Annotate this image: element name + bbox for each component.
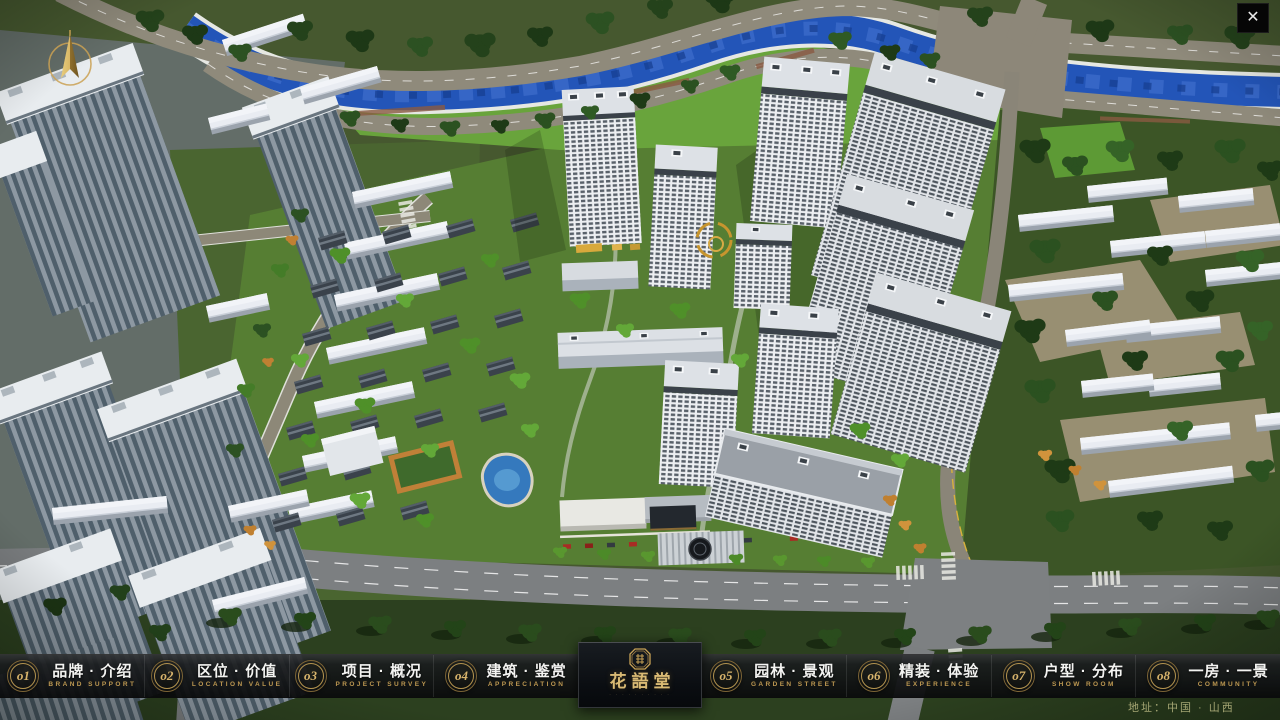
compass-icon: [44, 26, 96, 96]
brand-tagline: · · · · · · · · · ·: [609, 693, 670, 697]
menu-badge-icon: o3: [295, 660, 327, 692]
menu-group-left: o1 品牌 · 介绍BRAND SUPPORT o2 区位 · 价值LOCATI…: [0, 655, 578, 697]
menu-label-en: COMMUNITY: [1198, 682, 1260, 689]
menu-badge-icon: o2: [151, 660, 183, 692]
menu-label-zh: 建筑 · 鉴赏: [486, 664, 566, 679]
site-aerial-view: [0, 0, 1280, 720]
menu-badge-icon: o1: [7, 660, 39, 692]
close-button[interactable]: ✕: [1237, 3, 1269, 33]
menu-label-en: EXPERIENCE: [906, 682, 972, 689]
menu-badge-icon: o8: [1147, 660, 1179, 692]
menu-label-zh: 区位 · 价值: [197, 664, 277, 679]
menu-badge-icon: o6: [858, 660, 890, 692]
menu-label-zh: 项目 · 概况: [342, 664, 422, 679]
brand-seal-icon: [628, 647, 652, 671]
close-icon: ✕: [1246, 10, 1259, 26]
menu-label-en: GARDEN STREET: [751, 682, 838, 689]
menu-item-location-value[interactable]: o2 区位 · 价值LOCATION VALUE: [144, 655, 289, 697]
menu-item-architecture[interactable]: o4 建筑 · 鉴赏APPRECIATION: [433, 655, 578, 697]
menu-item-unit-distribution[interactable]: o7 户型 · 分布SHOW ROOM: [991, 655, 1136, 697]
menu-label-en: PROJECT SURVEY: [336, 682, 429, 689]
menu-item-garden-landscape[interactable]: o5 园林 · 景观GARDEN STREET: [702, 655, 846, 697]
menu-label-zh: 精装 · 体验: [899, 664, 979, 679]
menu-label-zh: 一房 · 一景: [1188, 664, 1268, 679]
menu-label-en: SHOW ROOM: [1052, 682, 1116, 689]
vignette-overlay: [0, 0, 1280, 720]
brand-title: 花語堂: [605, 673, 676, 690]
menu-label-zh: 户型 · 分布: [1044, 664, 1124, 679]
brand-logo-panel[interactable]: 花語堂 · · · · · · · · · ·: [578, 642, 702, 708]
menu-label-en: BRAND SUPPORT: [48, 682, 136, 689]
menu-badge-icon: o4: [445, 660, 477, 692]
menu-item-decor-experience[interactable]: o6 精装 · 体验EXPERIENCE: [846, 655, 991, 697]
menu-label-zh: 园林 · 景观: [754, 664, 834, 679]
menu-badge-icon: o5: [710, 660, 742, 692]
menu-label-en: APPRECIATION: [488, 682, 565, 689]
menu-label-en: LOCATION VALUE: [192, 682, 282, 689]
menu-item-brand-intro[interactable]: o1 品牌 · 介绍BRAND SUPPORT: [0, 655, 144, 697]
menu-group-right: o5 园林 · 景观GARDEN STREET o6 精装 · 体验EXPERI…: [702, 655, 1280, 697]
project-address: 地址：中国 · 山西: [1128, 699, 1235, 715]
menu-item-project-overview[interactable]: o3 项目 · 概况PROJECT SURVEY: [289, 655, 434, 697]
presentation-window: ✕ o1 品牌 · 介绍BRAND SUPPORT o2 区位 · 价值LOCA…: [0, 0, 1280, 720]
menu-item-room-scenery[interactable]: o8 一房 · 一景COMMUNITY: [1135, 655, 1280, 697]
menu-badge-icon: o7: [1003, 660, 1035, 692]
menu-label-zh: 品牌 · 介绍: [52, 664, 132, 679]
